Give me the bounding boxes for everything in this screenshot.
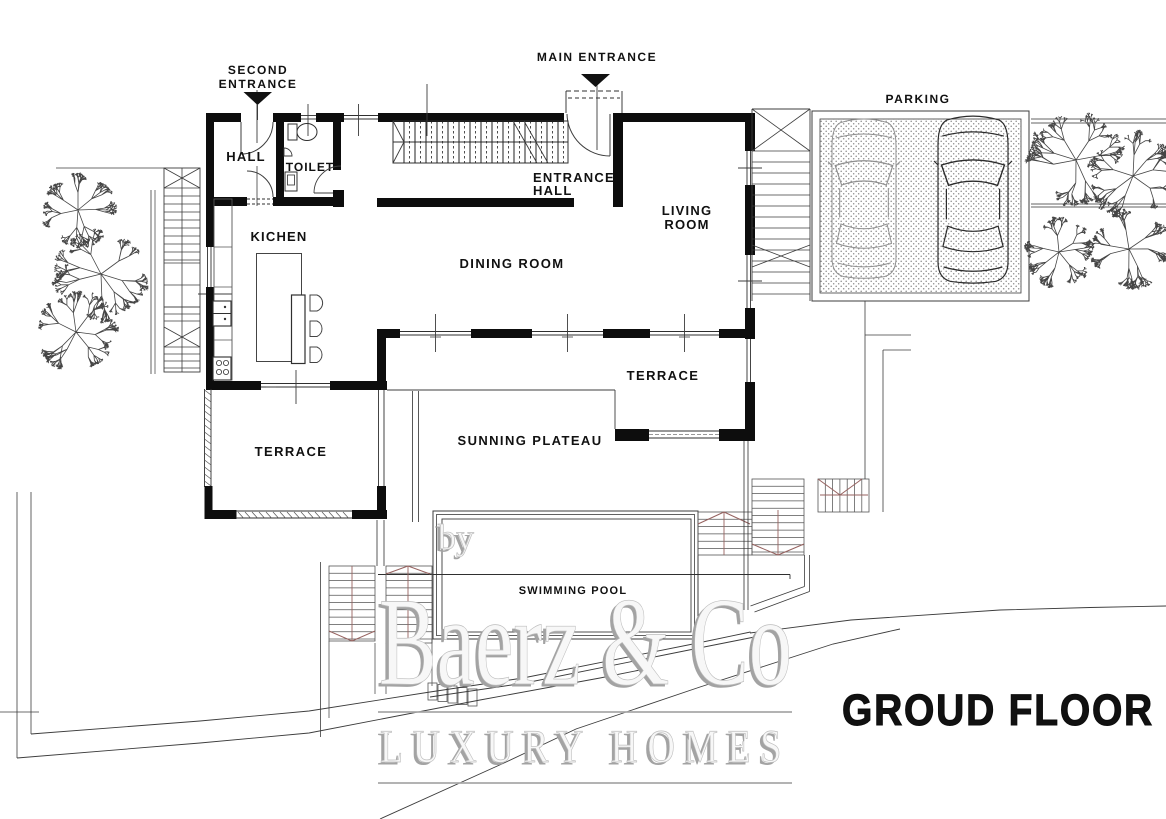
svg-text:HALL: HALL [533,183,572,198]
svg-text:TERRACE: TERRACE [255,444,328,459]
svg-text:DINING ROOM: DINING ROOM [460,256,565,271]
svg-text:ENTRANCE: ENTRANCE [219,77,298,91]
svg-text:HALL: HALL [226,149,265,164]
svg-text:PARKING: PARKING [886,92,951,106]
svg-text:Baerz & Co: Baerz & Co [379,573,792,712]
svg-text:SUNNING PLATEAU: SUNNING PLATEAU [458,433,603,448]
svg-text:SECOND: SECOND [228,63,288,77]
svg-text:KICHEN: KICHEN [250,229,307,244]
svg-text:by: by [438,517,474,557]
svg-text:ROOM: ROOM [664,217,709,232]
svg-text:LIVING: LIVING [662,203,713,218]
svg-text:GROUD FLOOR: GROUD FLOOR [842,686,1154,735]
svg-text:TERRACE: TERRACE [627,368,700,383]
svg-text:MAIN ENTRANCE: MAIN ENTRANCE [537,50,657,64]
svg-text:LUXURY HOMES: LUXURY HOMES [380,721,791,773]
